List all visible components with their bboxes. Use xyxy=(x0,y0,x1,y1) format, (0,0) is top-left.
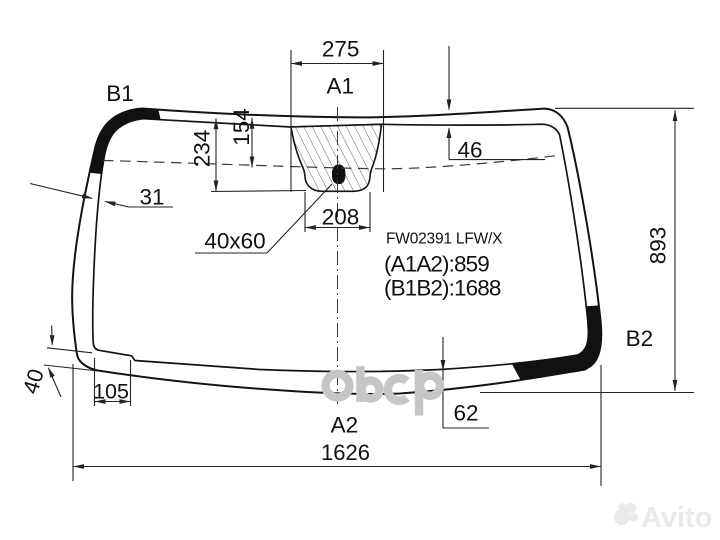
svg-text:208: 208 xyxy=(322,205,360,230)
svg-text:(A1A2):859: (A1A2):859 xyxy=(384,252,489,277)
svg-text:40x60: 40x60 xyxy=(204,229,265,254)
svg-text:Avito: Avito xyxy=(641,502,712,534)
svg-text:105: 105 xyxy=(93,380,129,404)
svg-text:A2: A2 xyxy=(331,413,359,438)
svg-text:B1: B1 xyxy=(106,81,134,106)
svg-text:46: 46 xyxy=(457,138,482,163)
svg-text:31: 31 xyxy=(139,185,164,210)
svg-text:B2: B2 xyxy=(626,326,654,351)
svg-text:(B1B2):1688: (B1B2):1688 xyxy=(384,276,501,301)
svg-text:FW02391 LFW/X: FW02391 LFW/X xyxy=(386,231,503,248)
svg-text:234: 234 xyxy=(190,130,215,168)
svg-text:62: 62 xyxy=(453,401,478,426)
svg-text:893: 893 xyxy=(646,227,671,265)
svg-text:275: 275 xyxy=(322,37,360,62)
svg-text:154: 154 xyxy=(229,108,254,146)
svg-text:1626: 1626 xyxy=(321,440,370,465)
svg-text:A1: A1 xyxy=(327,74,355,99)
